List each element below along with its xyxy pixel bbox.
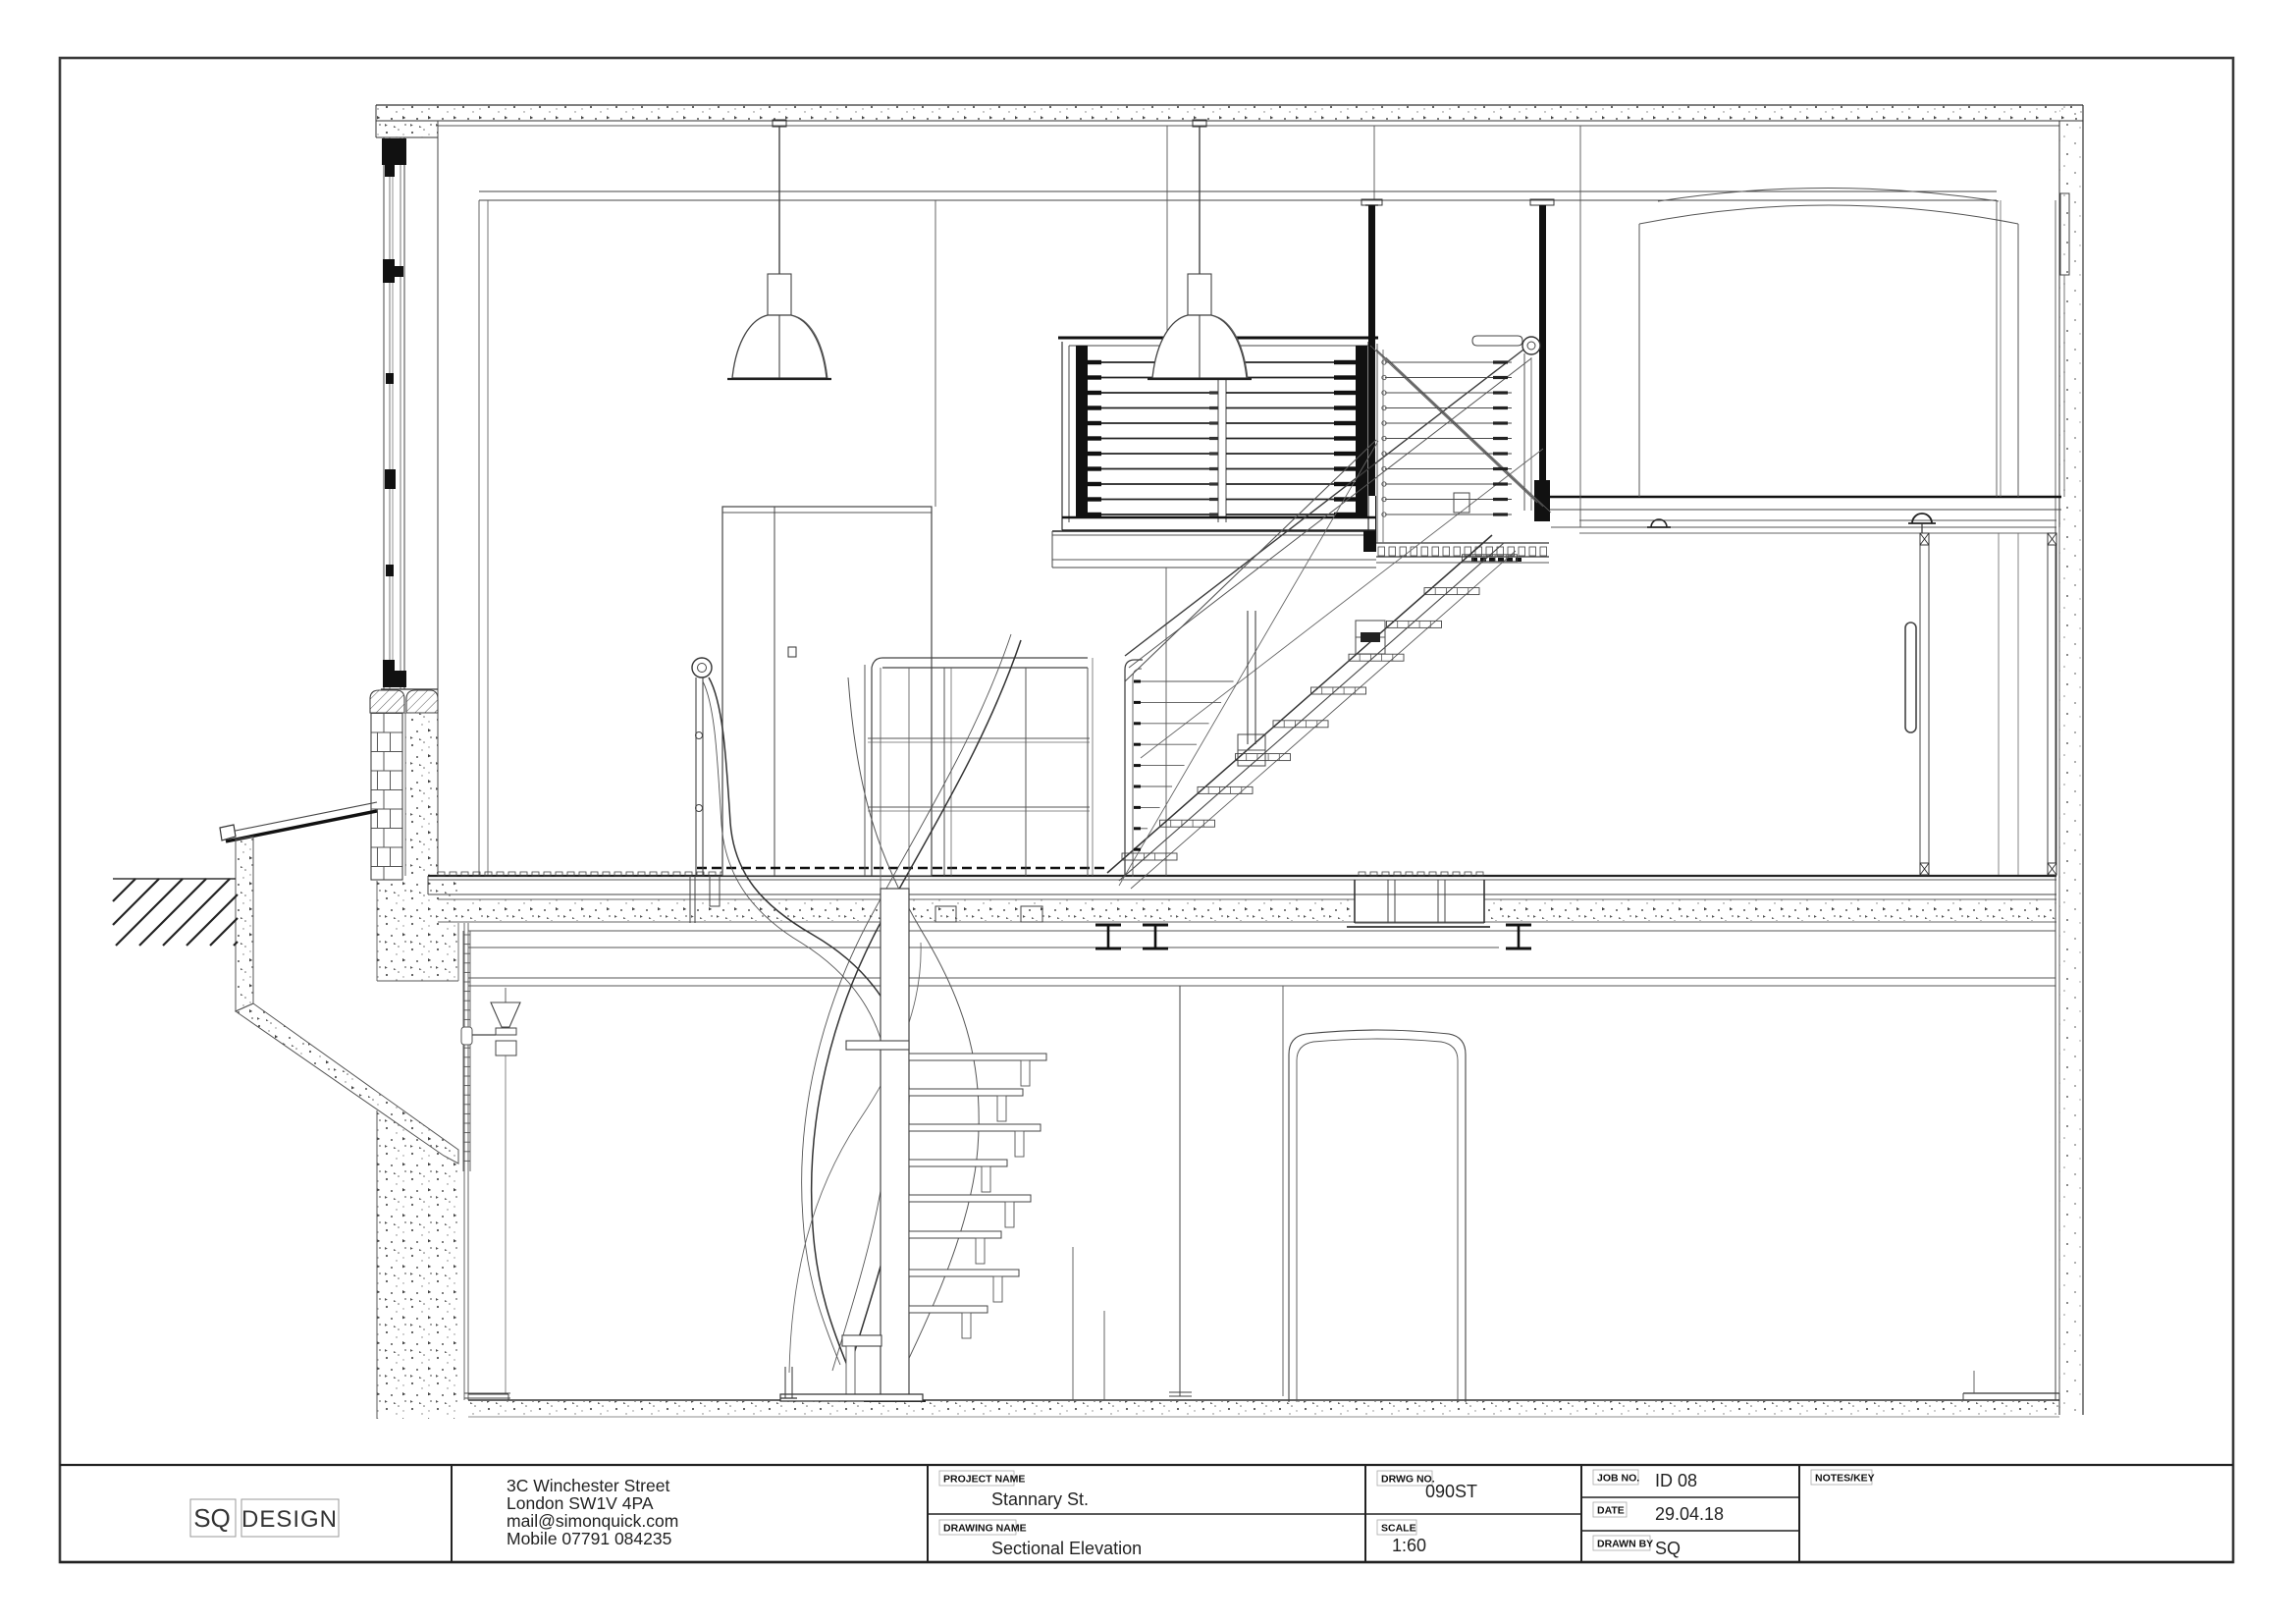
svg-text:Stannary St.: Stannary St.	[991, 1489, 1089, 1509]
svg-text:DRAWING NAME: DRAWING NAME	[943, 1523, 1027, 1535]
svg-text:090ST: 090ST	[1425, 1482, 1477, 1501]
svg-text:mail@simonquick.com: mail@simonquick.com	[507, 1511, 678, 1531]
svg-text:Sectional Elevation: Sectional Elevation	[991, 1539, 1142, 1558]
svg-text:29.04.18: 29.04.18	[1655, 1504, 1724, 1524]
svg-text:JOB NO.: JOB NO.	[1597, 1473, 1639, 1485]
svg-text:SQ: SQ	[193, 1503, 231, 1533]
svg-text:3C Winchester Street: 3C Winchester Street	[507, 1476, 669, 1495]
svg-text:PROJECT NAME: PROJECT NAME	[943, 1474, 1025, 1486]
svg-text:1:60: 1:60	[1392, 1536, 1426, 1555]
svg-text:DESIGN: DESIGN	[241, 1506, 338, 1533]
svg-text:SCALE: SCALE	[1381, 1523, 1416, 1535]
svg-text:ID 08: ID 08	[1655, 1471, 1697, 1490]
svg-text:DATE: DATE	[1597, 1505, 1625, 1517]
svg-text:SQ: SQ	[1655, 1539, 1681, 1558]
svg-text:London SW1V 4PA: London SW1V 4PA	[507, 1493, 654, 1513]
svg-text:DRAWN BY: DRAWN BY	[1597, 1539, 1653, 1550]
svg-text:NOTES/KEY: NOTES/KEY	[1815, 1473, 1875, 1485]
svg-text:Mobile 07791 084235: Mobile 07791 084235	[507, 1529, 671, 1548]
